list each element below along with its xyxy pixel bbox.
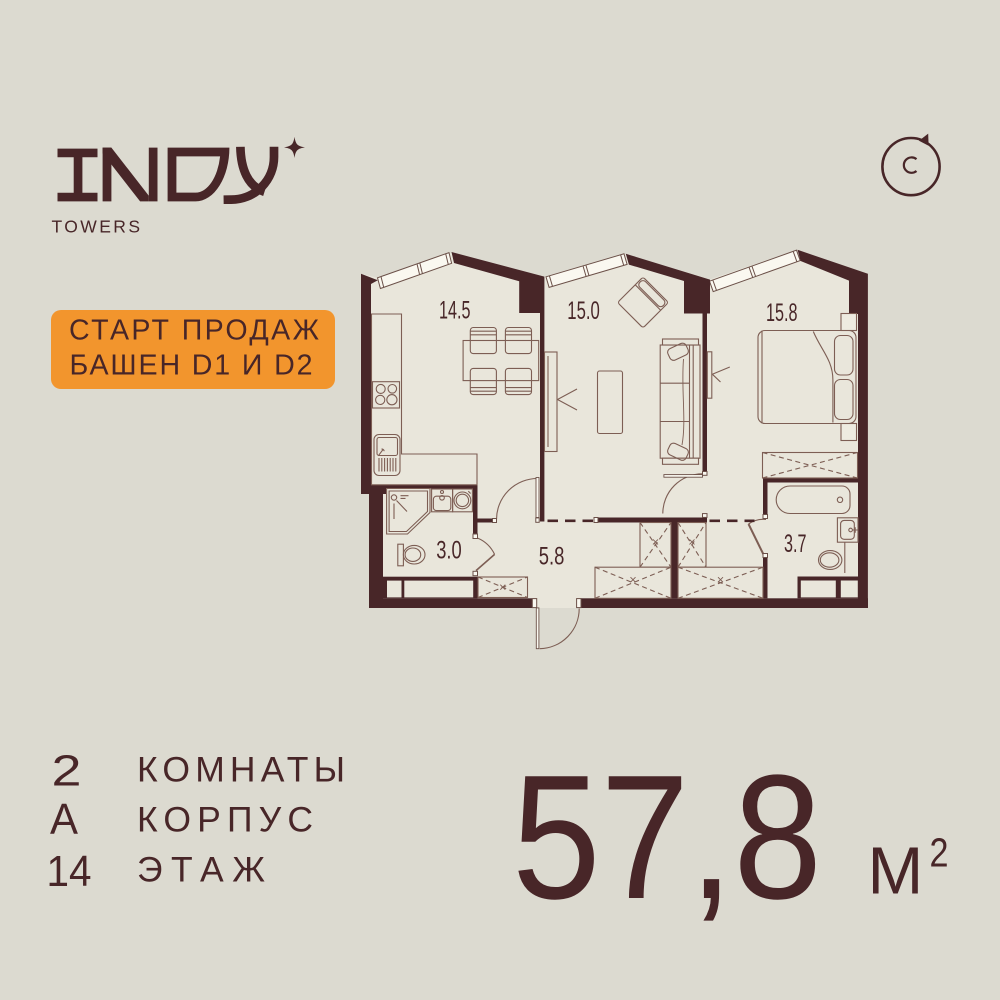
svg-text:ЭТАЖ: ЭТАЖ — [137, 850, 265, 890]
svg-text:15.0: 15.0 — [567, 297, 600, 325]
svg-text:14.5: 14.5 — [439, 297, 471, 325]
svg-text:М: М — [868, 833, 924, 908]
svg-text:57,8: 57,8 — [512, 738, 822, 936]
svg-text:5.8: 5.8 — [539, 543, 565, 571]
svg-text:2: 2 — [52, 747, 82, 796]
svg-text:А: А — [50, 795, 79, 844]
svg-text:КОМНАТЫ: КОМНАТЫ — [137, 750, 345, 790]
svg-text:СТАРТ ПРОДАЖ: СТАРТ ПРОДАЖ — [69, 315, 320, 347]
svg-text:БАШЕН D1 И D2: БАШЕН D1 И D2 — [70, 349, 313, 381]
svg-text:15.8: 15.8 — [766, 299, 798, 327]
svg-text:3.7: 3.7 — [784, 530, 807, 558]
svg-text:14: 14 — [47, 847, 92, 896]
svg-text:2: 2 — [930, 830, 949, 876]
svg-text:3.0: 3.0 — [436, 537, 462, 565]
